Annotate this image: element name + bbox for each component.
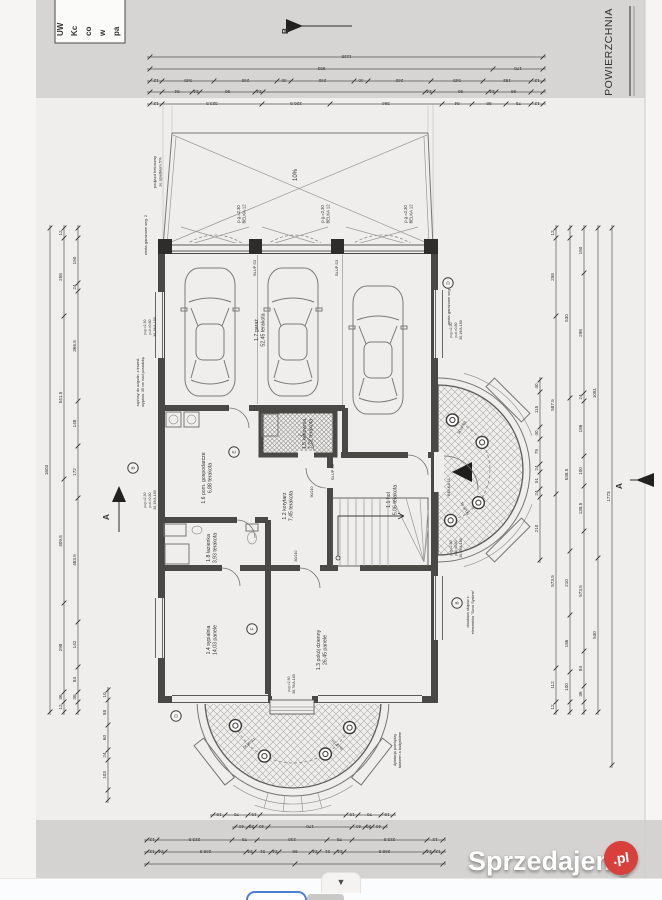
- dimension-label: 142: [72, 640, 77, 648]
- note-label: BELKA 11: [446, 477, 451, 496]
- room-label: 1.5 kotłownia7,72 terakota: [302, 419, 315, 449]
- axis-bubble-letter: E: [232, 450, 237, 453]
- dimension-label: 150: [578, 246, 583, 254]
- dimension-label: 210: [534, 524, 539, 532]
- dimension-label: 220.5: [290, 101, 302, 106]
- note-label: 90/210: [310, 487, 314, 498]
- dimension-label: 100: [564, 683, 569, 691]
- note-label: 10%: [293, 168, 299, 181]
- dimension-label: 84: [454, 101, 460, 106]
- dimension-label: 20: [249, 824, 255, 829]
- dimension-label: 40: [534, 430, 539, 436]
- dimension-label: 24: [256, 89, 262, 94]
- dimension-label: 12: [149, 837, 155, 842]
- dimension-label: 545: [184, 78, 192, 83]
- dimension-label: 248.5: [199, 849, 211, 854]
- dimension-label: 186: [578, 424, 583, 432]
- dimension-label: 24: [337, 849, 343, 854]
- dimension-label: 258: [58, 273, 63, 281]
- dimension-label: 12: [550, 704, 555, 710]
- dimension-label: 12: [534, 101, 540, 106]
- dimension-label: 10: [102, 692, 107, 698]
- dimension-label: 545: [453, 78, 461, 83]
- watermark-tld: .pl: [612, 849, 630, 867]
- note-label: p.g.=2,30p.d.=0,8036,19/A-180: [143, 490, 157, 510]
- note-label: p.g.=2,30BELKA 12: [236, 204, 247, 224]
- corner-note-line: pa: [112, 26, 121, 36]
- dimension-label: 12: [534, 78, 540, 83]
- corner-note-line: UW: [56, 22, 65, 36]
- dimension-label: 84: [174, 89, 180, 94]
- primary-action-button-partial[interactable]: [246, 891, 307, 900]
- dimension-label: 12: [432, 837, 438, 842]
- note-label: SŁUP S3: [252, 259, 257, 276]
- note-label: p.g.=2,30BELKA 12: [403, 204, 414, 224]
- svg-text:POWIERZCHNIA: POWIERZCHNIA: [603, 8, 615, 96]
- section-marker-letter: B: [280, 28, 290, 34]
- note-label: p.g.=2,3036,76/A-180: [287, 674, 296, 694]
- dimension-label: 58: [102, 710, 107, 716]
- note-label: p.g.=2,30BELKA 12: [320, 204, 331, 224]
- dimension-label: 12: [153, 101, 159, 106]
- dimension-label: 75: [534, 449, 539, 455]
- note-label: p.g.=2,30p.d.=0,8036,19/A-180: [449, 538, 463, 558]
- axis-bubble: D: [443, 278, 453, 288]
- dimension-label: 24: [247, 849, 253, 854]
- dimension-label: 12: [550, 230, 555, 236]
- dimension-label: 40: [239, 824, 245, 829]
- room-label: 1.4 sypialnia14,03 panele: [206, 625, 219, 655]
- dimension-label: 1603: [44, 464, 49, 475]
- dimension-label: 75: [516, 101, 522, 106]
- dimension-label: 70: [234, 812, 240, 817]
- dimension-label: 24: [534, 465, 539, 471]
- dimension-label: 12: [58, 704, 63, 710]
- dimension-label: 60: [102, 735, 107, 741]
- dimension-label: 19: [251, 812, 257, 817]
- dimension-label: 538.5: [564, 468, 569, 480]
- dimension-label: 573.5: [578, 585, 583, 597]
- axis-bubble: E: [229, 447, 239, 457]
- dimension-label: 210: [288, 837, 296, 842]
- dimension-label: 96: [292, 849, 298, 854]
- dimension-label: 298: [578, 329, 583, 337]
- dimension-label: 24: [158, 849, 164, 854]
- dimension-label: 409.5: [58, 535, 63, 547]
- dimension-label: 24: [426, 89, 432, 94]
- dimension-label: 12: [435, 849, 441, 854]
- axis-bubble-letter: B: [455, 601, 460, 604]
- dimension-label: 172: [72, 468, 77, 476]
- dimension-label: 240: [318, 78, 326, 83]
- axis-bubble-letter: B: [131, 466, 136, 469]
- dimension-label: 541.5: [58, 391, 63, 403]
- note-label: szprosy do uzgodn. z inwest.wyprow. 35 c…: [136, 357, 145, 407]
- dimension-label: 90: [225, 89, 231, 94]
- dimension-label: 12: [153, 78, 159, 83]
- dimension-label: 24: [193, 89, 199, 94]
- secondary-action-button-partial[interactable]: [307, 894, 344, 900]
- dimension-label: 40: [356, 824, 362, 829]
- dimension-label: 98: [486, 101, 492, 106]
- corner-note-line: w: [98, 29, 107, 37]
- corner-note-line: Kc: [70, 25, 79, 36]
- note-label: wrota garażowe seg. 2: [446, 284, 451, 325]
- dimension-label: 51: [325, 849, 331, 854]
- dimension-label: 12: [149, 849, 155, 854]
- corner-note-line: co: [84, 27, 93, 36]
- dimension-label: 24: [578, 394, 583, 400]
- dimension-label: 36: [72, 694, 77, 700]
- dimension-label: 170: [514, 66, 522, 71]
- dimension-label: 40: [534, 383, 539, 389]
- dimension-label: 24: [534, 490, 539, 496]
- dimension-label: 98: [511, 89, 517, 94]
- dimension-label: 36: [578, 691, 583, 697]
- dimension-label: 75: [242, 837, 248, 842]
- dimension-label: 298: [58, 643, 63, 651]
- dimension-label: 240: [395, 78, 403, 83]
- dimension-label: 483.5: [72, 554, 77, 566]
- note-label: SŁUP S2: [330, 463, 335, 480]
- section-marker-letter: A: [101, 514, 111, 520]
- dimension-label: 24: [72, 284, 77, 290]
- chevron-down-icon: ▼: [337, 877, 346, 887]
- dimension-label: 258: [550, 273, 555, 281]
- watermark: Sprzedajemy .pl: [468, 840, 658, 882]
- dimension-label: 587.5: [550, 399, 555, 411]
- axis-bubble: B: [452, 598, 462, 608]
- dimension-label: 323.5: [206, 101, 218, 106]
- dimension-label: 24: [312, 849, 318, 854]
- dimension-label: 75: [337, 837, 343, 842]
- dimension-label: 1081: [592, 387, 597, 398]
- room-label: 1.3 pokój dzienny26,45 panele: [316, 629, 329, 670]
- dimension-label: 40: [358, 78, 364, 83]
- collapse-arrow-button[interactable]: ▼: [321, 872, 361, 893]
- dimension-label: 40: [376, 824, 382, 829]
- listing-image-floor-plan[interactable]: UW Kc co w pa POWIERZCHNIA: [0, 0, 662, 878]
- dimension-label: 115: [534, 405, 539, 413]
- dimension-label: 223.5: [188, 837, 200, 842]
- dimension-label: 90: [458, 89, 464, 94]
- note-label: podjazd betonowyze spadkiem 5%: [152, 156, 162, 188]
- dimension-label: 366.5: [72, 340, 77, 352]
- dimension-label: 138.5: [578, 502, 583, 514]
- section-marker-letter: A: [614, 483, 624, 489]
- dimension-label: 223.5: [383, 837, 395, 842]
- dimension-label: 192: [503, 78, 511, 83]
- dimension-label: 100: [578, 467, 583, 475]
- dimension-label: 40: [259, 824, 265, 829]
- note-label: p.g.=2,30p.d.=0,8036,19/A-180: [449, 320, 463, 340]
- note-label: SŁUP S3: [334, 259, 339, 276]
- dimension-label: 20: [366, 824, 372, 829]
- dimension-label: 530: [564, 314, 569, 322]
- boiler-room-hatch: [260, 410, 336, 456]
- dimension-label: 19: [216, 812, 222, 817]
- dimension-label: 364: [382, 101, 390, 106]
- dimension-label: 210: [564, 579, 569, 587]
- dimension-label: 70: [367, 812, 373, 817]
- dimension-label: 24: [426, 849, 432, 854]
- dimension-label: 24: [272, 849, 278, 854]
- dimension-label: 248.5: [378, 849, 390, 854]
- room-label: 1.2 korytarz7,45 terakota: [282, 491, 295, 521]
- corner-note-box: UW Kc co w pa: [55, 0, 125, 43]
- axis-bubble: D: [171, 711, 181, 721]
- dimension-label: 51: [260, 849, 266, 854]
- dimension-label: 530: [592, 631, 597, 639]
- dimension-label: 953: [317, 66, 325, 71]
- dimension-label: 19: [349, 812, 355, 817]
- dimension-label: 573.5: [550, 575, 555, 587]
- dimension-label: 170: [306, 824, 314, 829]
- dimension-label: 1125: [341, 54, 351, 59]
- dimension-label: 24: [102, 752, 107, 758]
- dimension-label: 186: [564, 639, 569, 647]
- dimension-label: 103: [102, 771, 107, 779]
- screenshot-root: UW Kc co w pa POWIERZCHNIA: [0, 0, 662, 900]
- note-label: 80/210: [294, 551, 298, 562]
- dimension-label: 1773: [606, 491, 611, 502]
- dimension-label: 19: [384, 812, 390, 817]
- axis-bubble-letter: F: [250, 627, 255, 630]
- dimension-label: 51: [534, 478, 539, 484]
- dimension-label: 150: [72, 256, 77, 264]
- dimension-label: 240: [241, 78, 249, 83]
- dimension-label: 40: [281, 78, 287, 83]
- dimension-label: 24: [489, 89, 495, 94]
- room-label: 1.8 łazienka3,93 terakota: [206, 533, 219, 563]
- note-label: p.g.=2,30p.d.=0,8036,19/A-180: [143, 317, 157, 337]
- axis-bubble: B: [128, 463, 138, 473]
- note-label: wrota garażowe seg. 2: [143, 214, 148, 255]
- dimension-label: 112: [550, 681, 555, 689]
- dimension-label: 84: [578, 666, 583, 672]
- dimension-label: 84: [72, 677, 77, 683]
- axis-bubble: F: [247, 624, 257, 634]
- dimension-label: 36: [58, 694, 63, 700]
- note-label: dylatacja pomiędzytarasem a budynkiem: [393, 732, 402, 768]
- dimension-label: 148: [72, 419, 77, 427]
- dimension-label: 12: [58, 230, 63, 236]
